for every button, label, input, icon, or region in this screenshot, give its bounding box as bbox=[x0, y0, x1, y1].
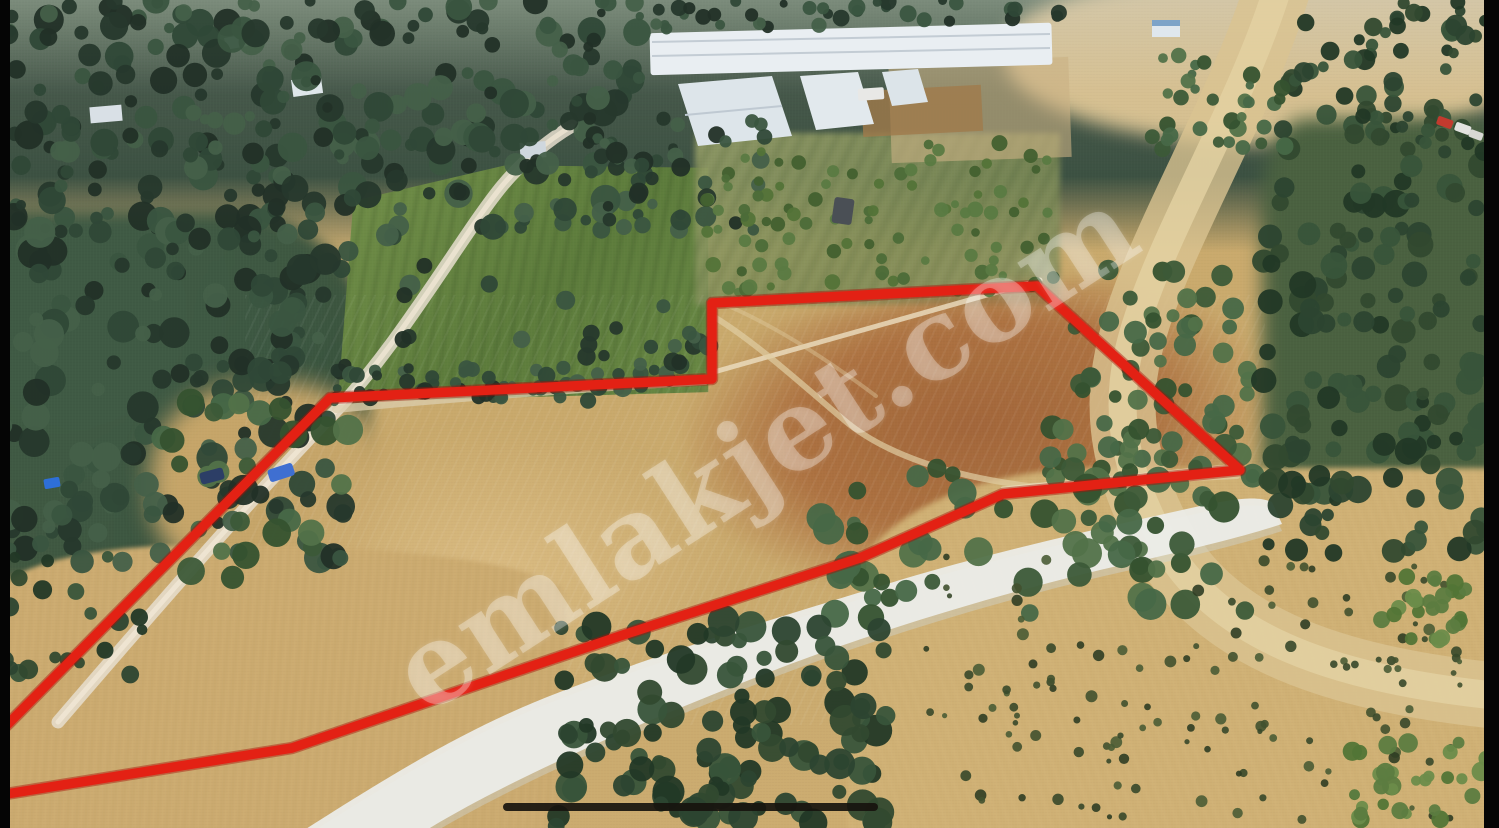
white-pickup bbox=[858, 87, 885, 101]
right-letterbox bbox=[1484, 0, 1499, 828]
blue-container bbox=[43, 477, 60, 490]
left-letterbox bbox=[0, 0, 10, 828]
screenshot-stage: emlakjet.com bbox=[0, 0, 1499, 828]
scene-overlay bbox=[0, 0, 1499, 828]
tree-clusters bbox=[0, 0, 1497, 828]
home-indicator[interactable] bbox=[503, 803, 878, 811]
suv bbox=[831, 197, 854, 226]
